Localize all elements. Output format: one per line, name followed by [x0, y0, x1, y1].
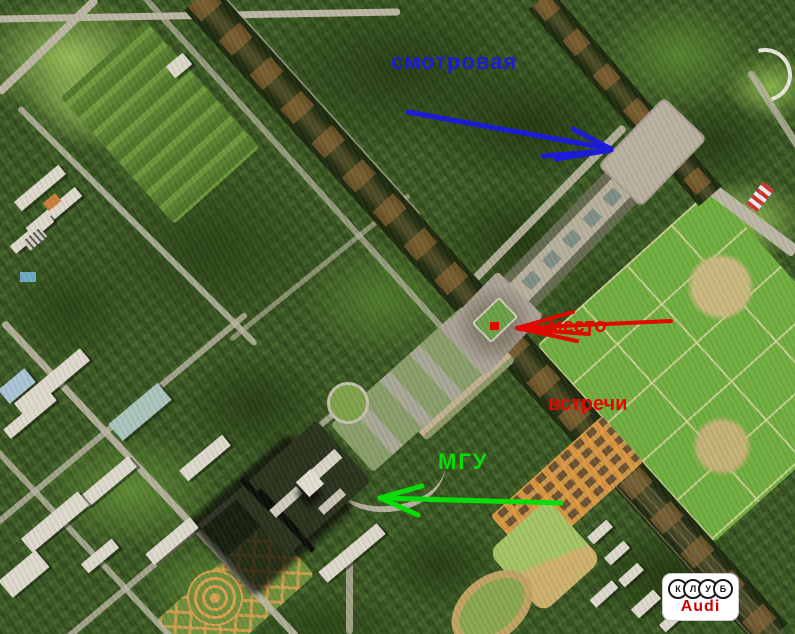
satellite-map-annotated: смотровая место встречи МГУ К Л У Б Audi [0, 0, 795, 634]
fountain-circle [327, 382, 369, 424]
label-viewpoint: смотровая [391, 49, 517, 75]
label-meeting-line1: место [548, 313, 627, 339]
forest-patch [0, 250, 140, 370]
brand-text: Audi [681, 599, 721, 615]
audi-rings-icon: К Л У Б [668, 580, 733, 598]
meeting-point-marker [490, 322, 499, 330]
audi-club-logo: К Л У Б Audi [662, 573, 739, 621]
ring-letter: Б [713, 579, 733, 599]
pool [20, 272, 36, 282]
label-meeting-line2: встречи [548, 391, 627, 417]
label-msu: МГУ [438, 449, 488, 475]
label-meeting-place: место встречи [548, 261, 627, 469]
